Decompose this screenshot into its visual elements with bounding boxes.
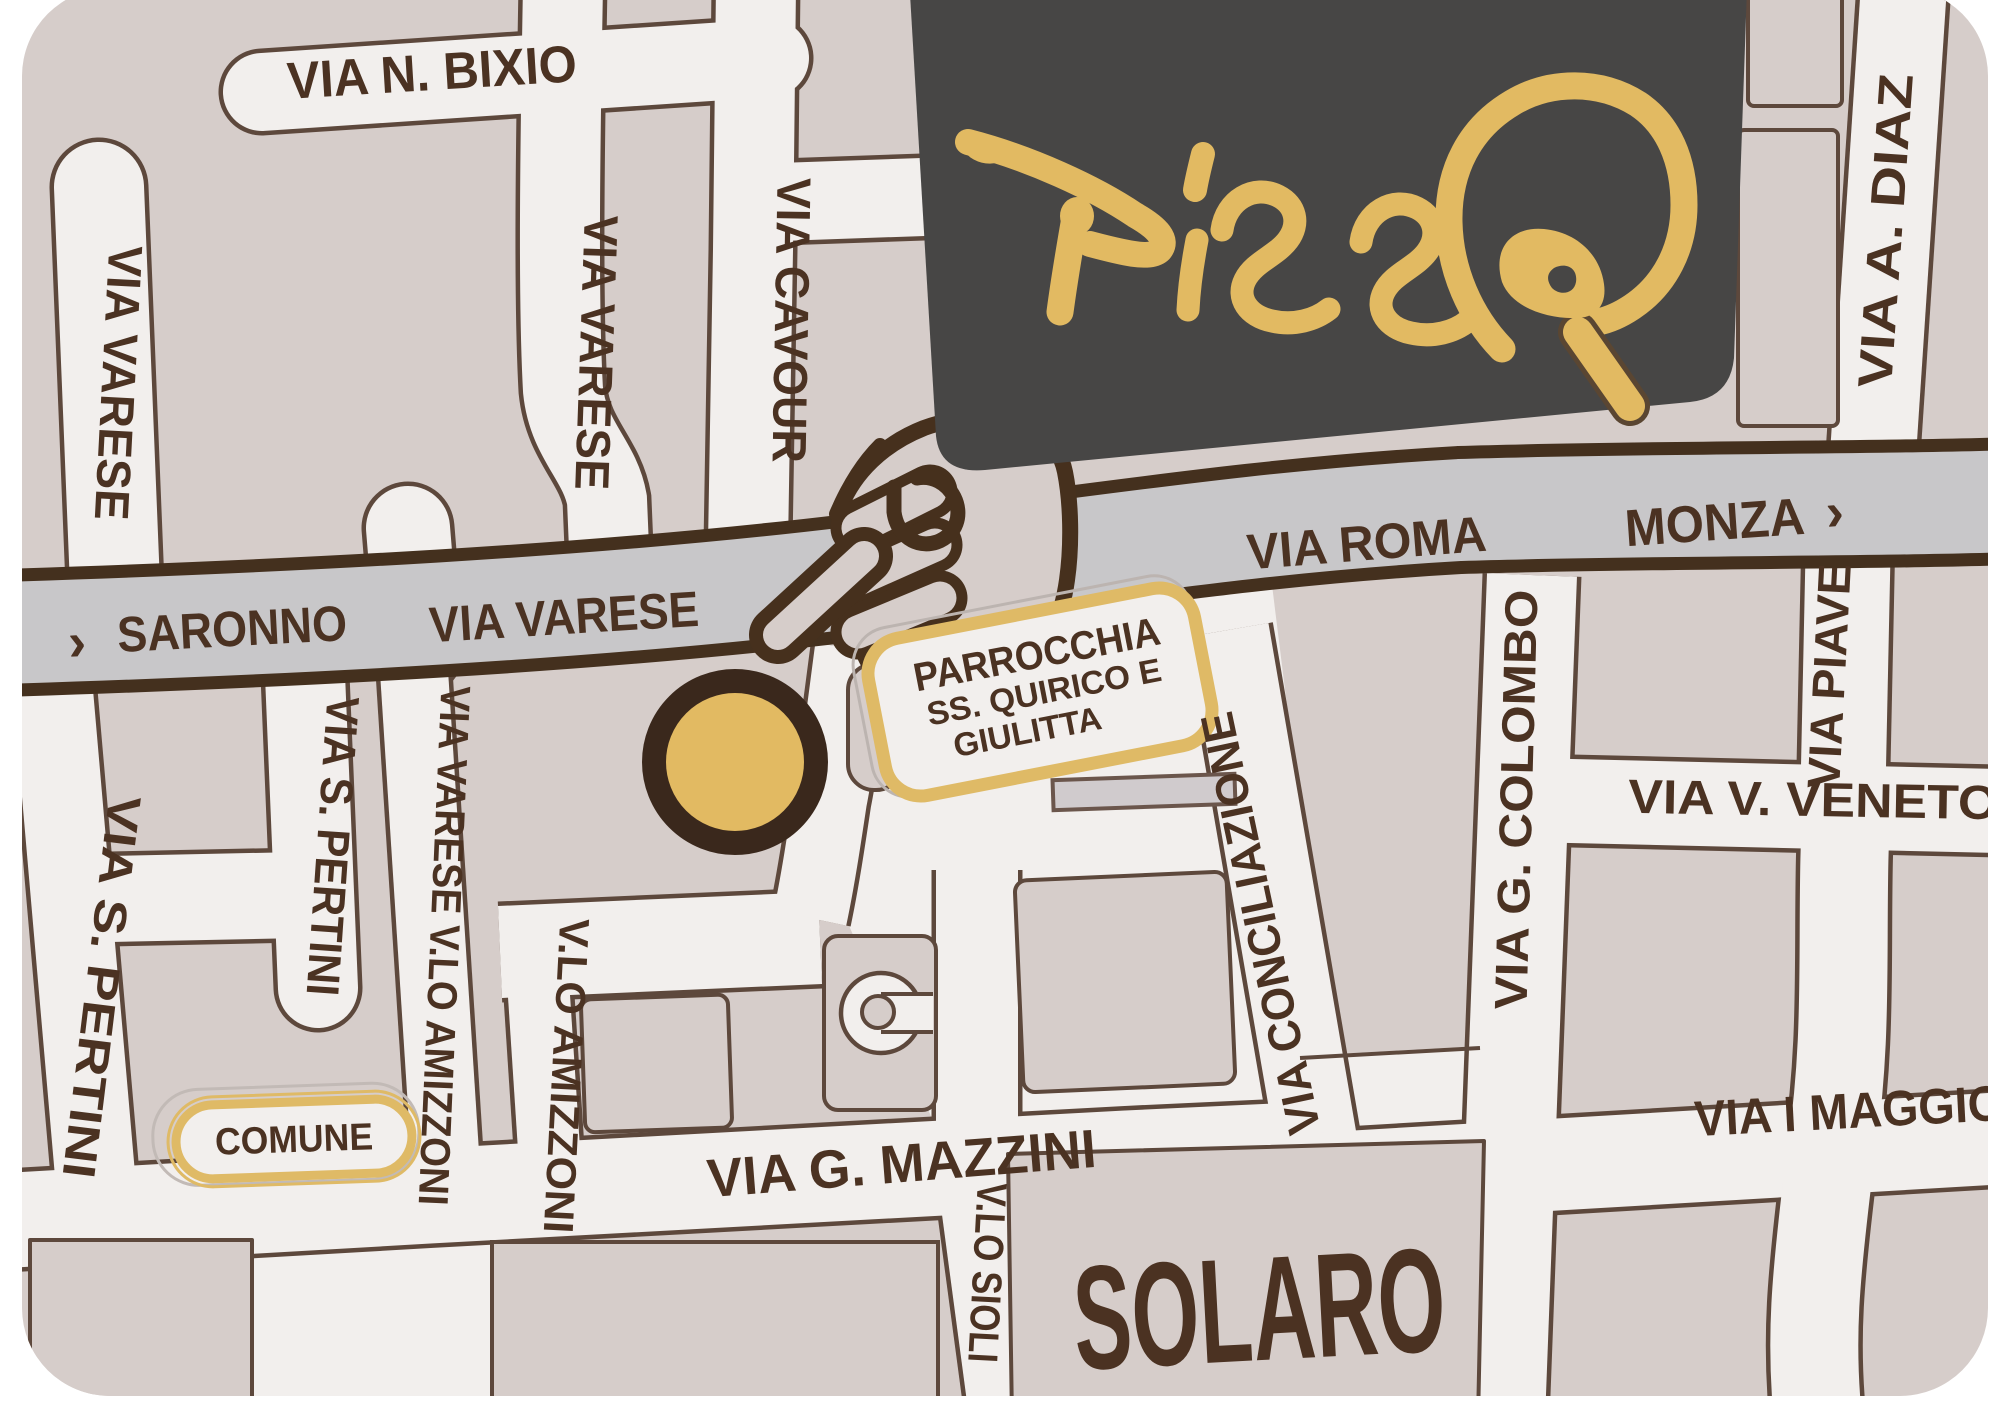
- svg-text:COMUNE: COMUNE: [214, 1116, 373, 1163]
- svg-text:VIA G. COLOMBO: VIA G. COLOMBO: [1485, 589, 1548, 1010]
- svg-text:SOLARO: SOLARO: [1069, 1217, 1449, 1401]
- svg-text:VIA CAVOUR: VIA CAVOUR: [762, 177, 820, 463]
- svg-text:VIA VARESE: VIA VARESE: [564, 214, 627, 491]
- svg-text:V.LO SIOLI: V.LO SIOLI: [959, 1182, 1015, 1364]
- svg-text:›: ›: [67, 612, 88, 673]
